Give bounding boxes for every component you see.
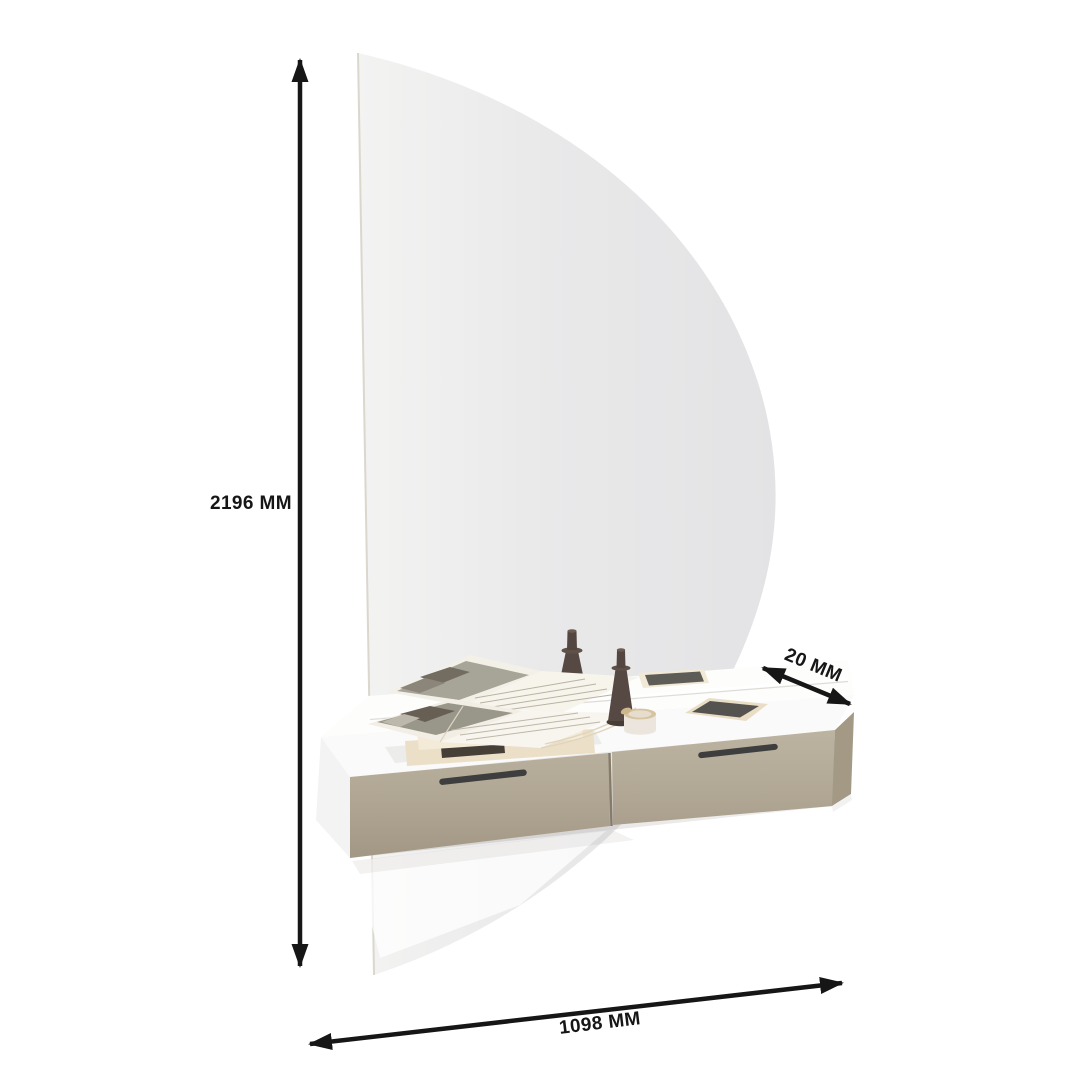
cosmetic-jar: [620, 706, 656, 735]
scene-canvas: [0, 0, 1080, 1080]
candle-stem: [617, 650, 626, 668]
candle-top: [617, 648, 625, 651]
product-dimension-diagram: 2196 MM 20 MM 1098 MM: [0, 0, 1080, 1080]
height-dimension-label: 2196 MM: [160, 493, 292, 515]
jar-lid-inner: [629, 710, 652, 717]
candle-stem: [567, 631, 577, 650]
candle-top: [567, 629, 576, 633]
